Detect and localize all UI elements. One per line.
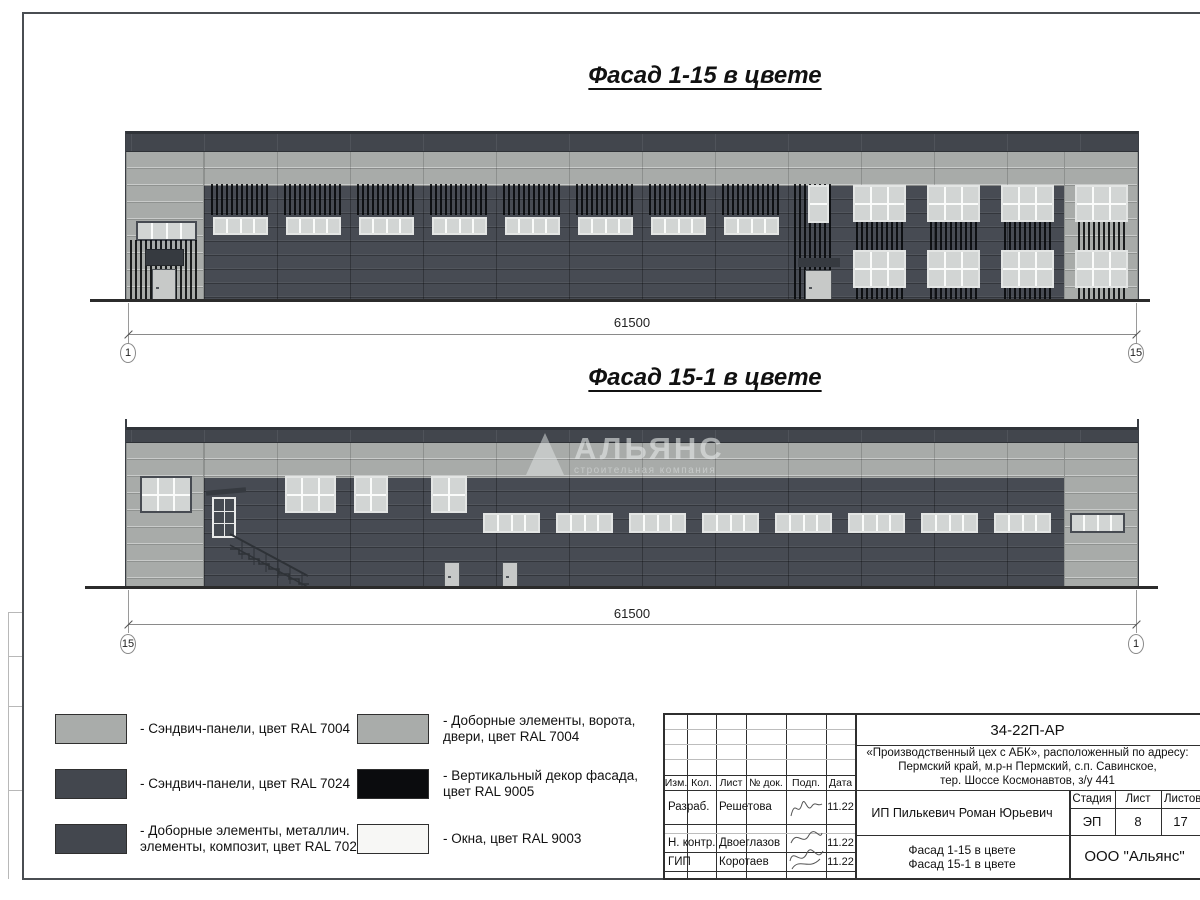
vertical-decor bbox=[576, 184, 635, 215]
margin-divider bbox=[8, 612, 22, 613]
tb-line bbox=[665, 729, 855, 730]
tb-project-line1: «Производственный цех с АБК», расположен… bbox=[855, 746, 1200, 760]
tb-col-list: Лист bbox=[716, 775, 746, 790]
entrance-sign bbox=[145, 249, 184, 266]
tb-role-date: 11.22 bbox=[826, 852, 855, 871]
axis-number: 1 bbox=[1133, 638, 1139, 650]
ribbon-window bbox=[213, 217, 268, 235]
tb-stage-value: ЭП bbox=[1069, 808, 1115, 835]
office-window bbox=[1001, 185, 1054, 222]
axis-marker-1: 1 bbox=[1128, 634, 1144, 654]
axis-number: 1 bbox=[125, 347, 131, 359]
office-window bbox=[431, 476, 467, 513]
vertical-decor bbox=[357, 184, 416, 215]
tb-doc-code: 34-22П-АР bbox=[855, 715, 1200, 745]
legend-label: - Окна, цвет RAL 9003 bbox=[443, 824, 668, 854]
tb-role: Н. контр. bbox=[668, 833, 716, 852]
facade-bay bbox=[204, 184, 277, 235]
tb-client: ИП Пилькевич Роман Юрьевич bbox=[855, 790, 1069, 835]
drawing-sheet: Фасад 1-15 в цвете bbox=[0, 0, 1200, 900]
facade-bay bbox=[569, 184, 642, 235]
corner-bay bbox=[126, 443, 204, 588]
tb-sheet-value: 8 bbox=[1115, 808, 1161, 835]
dimension-label: 61500 bbox=[420, 315, 844, 330]
ribbon-windows bbox=[483, 513, 1051, 533]
extension-line bbox=[1136, 590, 1137, 633]
tb-line bbox=[665, 824, 855, 825]
tb-sheets-total-value: 17 bbox=[1161, 808, 1200, 835]
ribbon-window bbox=[629, 513, 686, 533]
ribbon-window bbox=[921, 513, 978, 533]
dimension-line bbox=[128, 624, 1137, 625]
vertical-decor bbox=[930, 222, 977, 250]
office-door bbox=[805, 270, 832, 301]
ribbon-window bbox=[556, 513, 613, 533]
legend-swatch-ral7024 bbox=[55, 769, 127, 799]
axis-marker-1: 1 bbox=[120, 343, 136, 363]
facade-bay bbox=[496, 184, 569, 235]
ribbon-window bbox=[483, 513, 540, 533]
axis-marker-15: 15 bbox=[120, 634, 136, 654]
office-window bbox=[1075, 185, 1128, 222]
facade-bay bbox=[277, 184, 350, 235]
upper-panel-band bbox=[126, 152, 1138, 186]
tb-role-date: 11.22 bbox=[826, 833, 855, 852]
tb-role: ГИП bbox=[668, 852, 716, 871]
office-windows bbox=[853, 185, 1128, 301]
legend-swatch-ral7004 bbox=[55, 714, 127, 744]
service-door bbox=[444, 562, 460, 588]
facade-1-15-drawing bbox=[125, 131, 1139, 301]
margin-divider bbox=[8, 656, 22, 657]
legend-label: - Сэндвич-панели, цвет RAL 7004 bbox=[140, 714, 365, 744]
office-window bbox=[927, 185, 980, 222]
office-window bbox=[285, 476, 336, 513]
facade-15-1-title: Фасад 15-1 в цвете bbox=[455, 364, 955, 392]
facade-15-1-drawing: АЛЬЯНС строительная компания bbox=[125, 427, 1139, 588]
door-canopy bbox=[798, 258, 840, 267]
office-window bbox=[140, 476, 192, 513]
tb-col-ndok: № док. bbox=[746, 775, 786, 790]
office-window bbox=[853, 250, 906, 288]
tb-stage-label: Стадия bbox=[1069, 790, 1115, 808]
ribbon-window bbox=[651, 217, 706, 235]
legend-label: - Сэндвич-панели, цвет RAL 7024 bbox=[140, 769, 365, 799]
signature bbox=[787, 827, 825, 873]
axis-number: 15 bbox=[122, 638, 134, 650]
tb-role: Разраб. bbox=[668, 790, 716, 824]
axis-number: 15 bbox=[1130, 347, 1142, 359]
ribbon-window bbox=[1070, 513, 1125, 533]
extension-line bbox=[128, 303, 129, 344]
ground-line bbox=[85, 586, 1158, 589]
extension-line bbox=[128, 590, 129, 633]
tb-sheets-label: Листов bbox=[1161, 790, 1200, 808]
vertical-decor bbox=[284, 184, 343, 215]
margin-column-line bbox=[8, 612, 9, 879]
parapet-band bbox=[126, 427, 1138, 443]
ribbon-window bbox=[702, 513, 759, 533]
tb-col-podp: Подп. bbox=[786, 775, 826, 790]
industrial-bays bbox=[204, 184, 788, 235]
tb-line bbox=[665, 871, 855, 872]
facade-1-15-title: Фасад 1-15 в цвете bbox=[455, 62, 955, 90]
entrance-door bbox=[152, 269, 176, 301]
margin-divider bbox=[8, 790, 22, 791]
vertical-decor bbox=[1078, 222, 1125, 250]
office-window bbox=[1075, 250, 1128, 288]
signature bbox=[788, 794, 824, 822]
legend-swatch-ral9005 bbox=[357, 769, 429, 799]
legend-label: - Доборные элементы, металлич. элементы,… bbox=[140, 824, 365, 854]
ribbon-window bbox=[994, 513, 1051, 533]
tb-role-date: 11.22 bbox=[826, 790, 855, 824]
office-window-column bbox=[1075, 185, 1128, 301]
upper-panel-band bbox=[126, 443, 1138, 478]
service-door bbox=[502, 562, 518, 588]
vertical-decor bbox=[430, 184, 489, 215]
ribbon-window bbox=[848, 513, 905, 533]
vertical-decor bbox=[856, 222, 903, 250]
window-above-door bbox=[808, 185, 829, 223]
extension-line bbox=[1136, 303, 1137, 344]
facade-bay bbox=[715, 184, 788, 235]
title-block: Изм. Кол. Лист № док. Подп. Дата Разраб.… bbox=[663, 713, 1200, 880]
ground-line bbox=[90, 299, 1150, 302]
parapet-band bbox=[126, 131, 1138, 152]
ribbon-window bbox=[505, 217, 560, 235]
frame-left-line bbox=[22, 12, 24, 880]
office-window bbox=[1001, 250, 1054, 288]
vertical-decor bbox=[1004, 222, 1051, 250]
vertical-decor bbox=[211, 184, 270, 215]
tb-sheet-name-line1: Фасад 1-15 в цвете bbox=[855, 836, 1069, 857]
tb-line bbox=[716, 715, 717, 878]
tb-col-kol: Кол. bbox=[687, 775, 716, 790]
axis-marker-15: 15 bbox=[1128, 343, 1144, 363]
dimension-line bbox=[128, 334, 1137, 335]
tb-role-name: Коротаев bbox=[719, 852, 785, 871]
ribbon-window bbox=[359, 217, 414, 235]
tb-role-name: Решетова bbox=[719, 790, 785, 824]
tb-project-line2: Пермский край, м.р-н Пермский, с.п. Сави… bbox=[855, 760, 1200, 774]
frame-top-line bbox=[22, 12, 1200, 14]
vertical-decor bbox=[503, 184, 562, 215]
legend-label: - Доборные элементы, ворота, двери, цвет… bbox=[443, 714, 668, 744]
legend-swatch-ral9003 bbox=[357, 824, 429, 854]
dimension-label: 61500 bbox=[420, 606, 844, 621]
external-staircase bbox=[226, 532, 326, 588]
margin-divider bbox=[8, 706, 22, 707]
tb-sheet-name-line2: Фасад 15-1 в цвете bbox=[855, 857, 1069, 873]
office-window bbox=[354, 476, 388, 513]
facade-bay bbox=[350, 184, 423, 235]
tb-role-name: Двоеглазов bbox=[719, 833, 785, 852]
office-window bbox=[927, 250, 980, 288]
tb-sheet-label: Лист bbox=[1115, 790, 1161, 808]
tb-project-line3: тер. Шоссе Космонавтов, з/у 441 bbox=[855, 774, 1200, 788]
office-window bbox=[853, 185, 906, 222]
legend-swatch-ral7024-composite bbox=[55, 824, 127, 854]
ribbon-window bbox=[432, 217, 487, 235]
ribbon-window bbox=[775, 513, 832, 533]
vertical-decor bbox=[722, 184, 781, 215]
facade-bay bbox=[423, 184, 496, 235]
legend-label: - Вертикальный декор фасада, цвет RAL 90… bbox=[443, 769, 668, 799]
tb-line bbox=[665, 759, 855, 760]
tb-organization: ООО "Альянс" bbox=[1069, 835, 1200, 878]
facade-bay bbox=[642, 184, 715, 235]
tb-col-izm: Изм. bbox=[665, 775, 687, 790]
window bbox=[136, 221, 197, 241]
tb-col-data: Дата bbox=[826, 775, 855, 790]
legend-swatch-gates-ral7004 bbox=[357, 714, 429, 744]
office-window-column bbox=[1001, 185, 1054, 301]
ribbon-window bbox=[578, 217, 633, 235]
office-window-column bbox=[853, 185, 906, 301]
ribbon-window bbox=[724, 217, 779, 235]
ribbon-window bbox=[286, 217, 341, 235]
tb-line bbox=[665, 744, 855, 745]
vertical-decor bbox=[649, 184, 708, 215]
office-window-column bbox=[927, 185, 980, 301]
